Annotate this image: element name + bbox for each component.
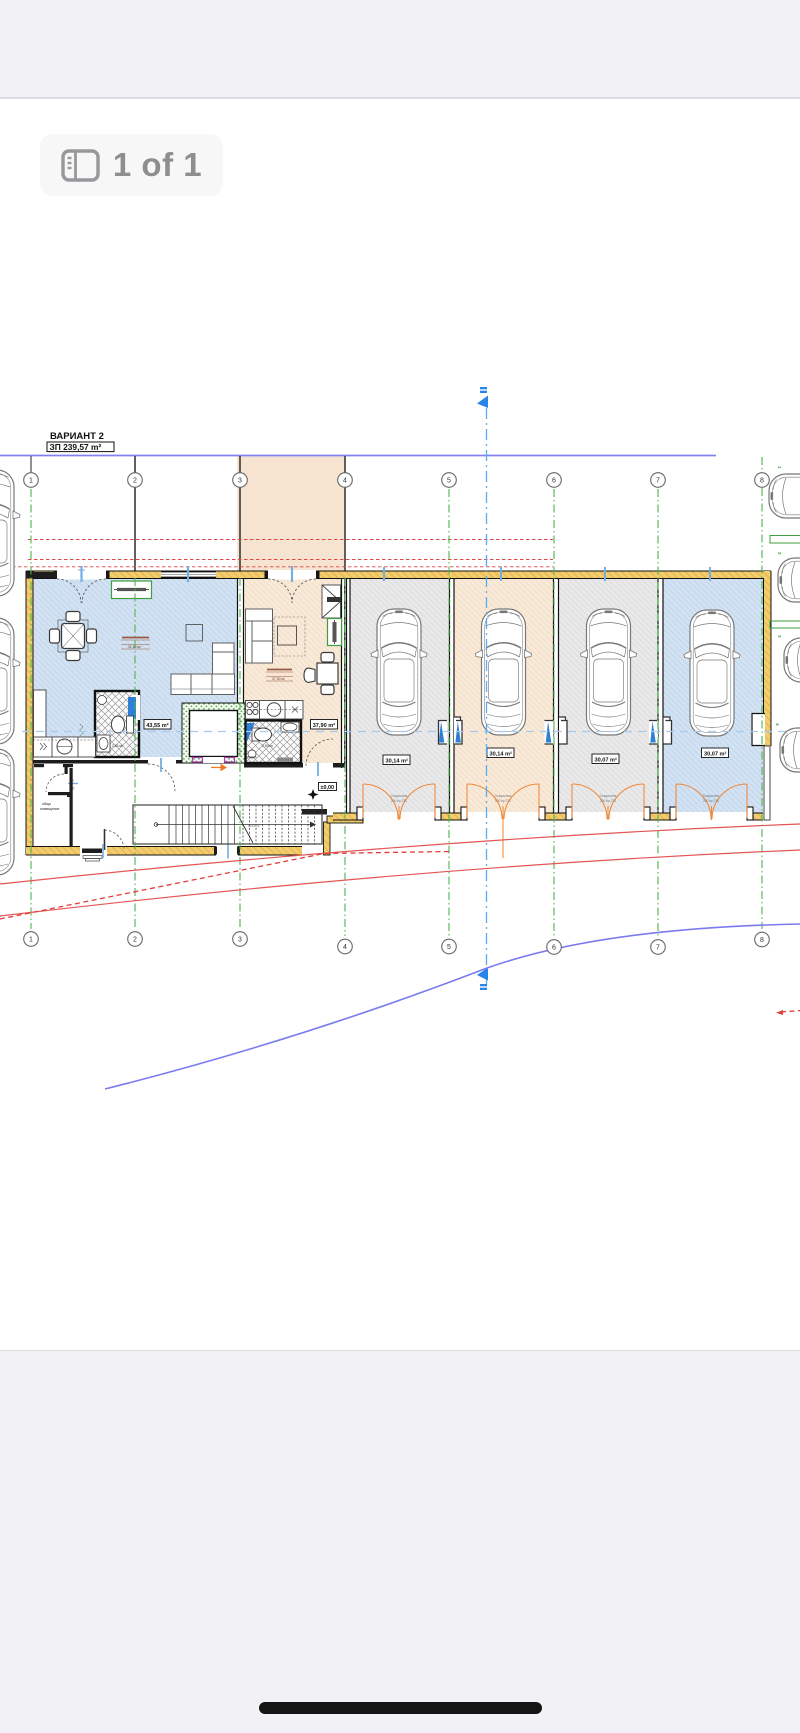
svg-text:ВАРИАНТ 2: ВАРИАНТ 2 <box>50 431 104 442</box>
svg-text:2,50 м²: 2,50 м² <box>262 744 274 748</box>
svg-text:43,55 m²: 43,55 m² <box>146 722 169 729</box>
svg-text:3: 3 <box>238 478 242 485</box>
svg-text:5: 5 <box>447 944 451 951</box>
svg-text:Секционна: Секционна <box>391 794 408 798</box>
svg-text:30,14 m²: 30,14 m² <box>490 750 513 757</box>
svg-text:30,14 m²: 30,14 m² <box>386 757 409 764</box>
svg-text:7: 7 <box>656 478 660 485</box>
svg-text:8: 8 <box>760 478 764 485</box>
svg-text:1: 1 <box>777 466 782 469</box>
svg-text:200 by 270: 200 by 270 <box>391 799 407 803</box>
svg-text:3: 3 <box>777 635 782 638</box>
svg-text:Секционна: Секционна <box>600 794 617 798</box>
svg-text:30,07 m²: 30,07 m² <box>595 756 618 763</box>
svg-text:Секционна: Секционна <box>495 794 512 798</box>
svg-text:4: 4 <box>343 944 347 951</box>
svg-text:1: 1 <box>29 478 33 485</box>
svg-text:200 by 270: 200 by 270 <box>600 799 616 803</box>
svg-text:4: 4 <box>775 723 780 726</box>
svg-text:±0,00: ±0,00 <box>321 785 334 791</box>
svg-text:2: 2 <box>133 937 137 944</box>
svg-text:30,07 m²: 30,07 m² <box>704 750 727 757</box>
svg-text:200 by 270: 200 by 270 <box>703 799 719 803</box>
svg-text:5: 5 <box>447 478 451 485</box>
svg-text:3: 3 <box>238 937 242 944</box>
svg-text:4: 4 <box>343 478 347 485</box>
svg-text:6: 6 <box>552 945 556 952</box>
svg-text:7: 7 <box>656 945 660 952</box>
svg-text:6: 6 <box>552 478 556 485</box>
svg-text:37,90 м²: 37,90 м² <box>272 677 286 681</box>
svg-text:1: 1 <box>29 937 33 944</box>
svg-text:помещение: помещение <box>40 807 59 811</box>
svg-text:17x17,6: 17x17,6 <box>248 824 260 828</box>
svg-text:200 by 270: 200 by 270 <box>495 799 511 803</box>
svg-text:общо: общо <box>42 802 51 806</box>
svg-text:2,60 м²: 2,60 м² <box>112 744 124 748</box>
svg-text:2: 2 <box>777 552 782 555</box>
svg-text:8: 8 <box>760 937 764 944</box>
svg-text:Секционна: Секционна <box>703 794 720 798</box>
svg-text:ЗП 239,57 m²: ЗП 239,57 m² <box>50 442 102 452</box>
svg-text:37,90 m²: 37,90 m² <box>313 722 336 729</box>
svg-text:2: 2 <box>133 478 137 485</box>
